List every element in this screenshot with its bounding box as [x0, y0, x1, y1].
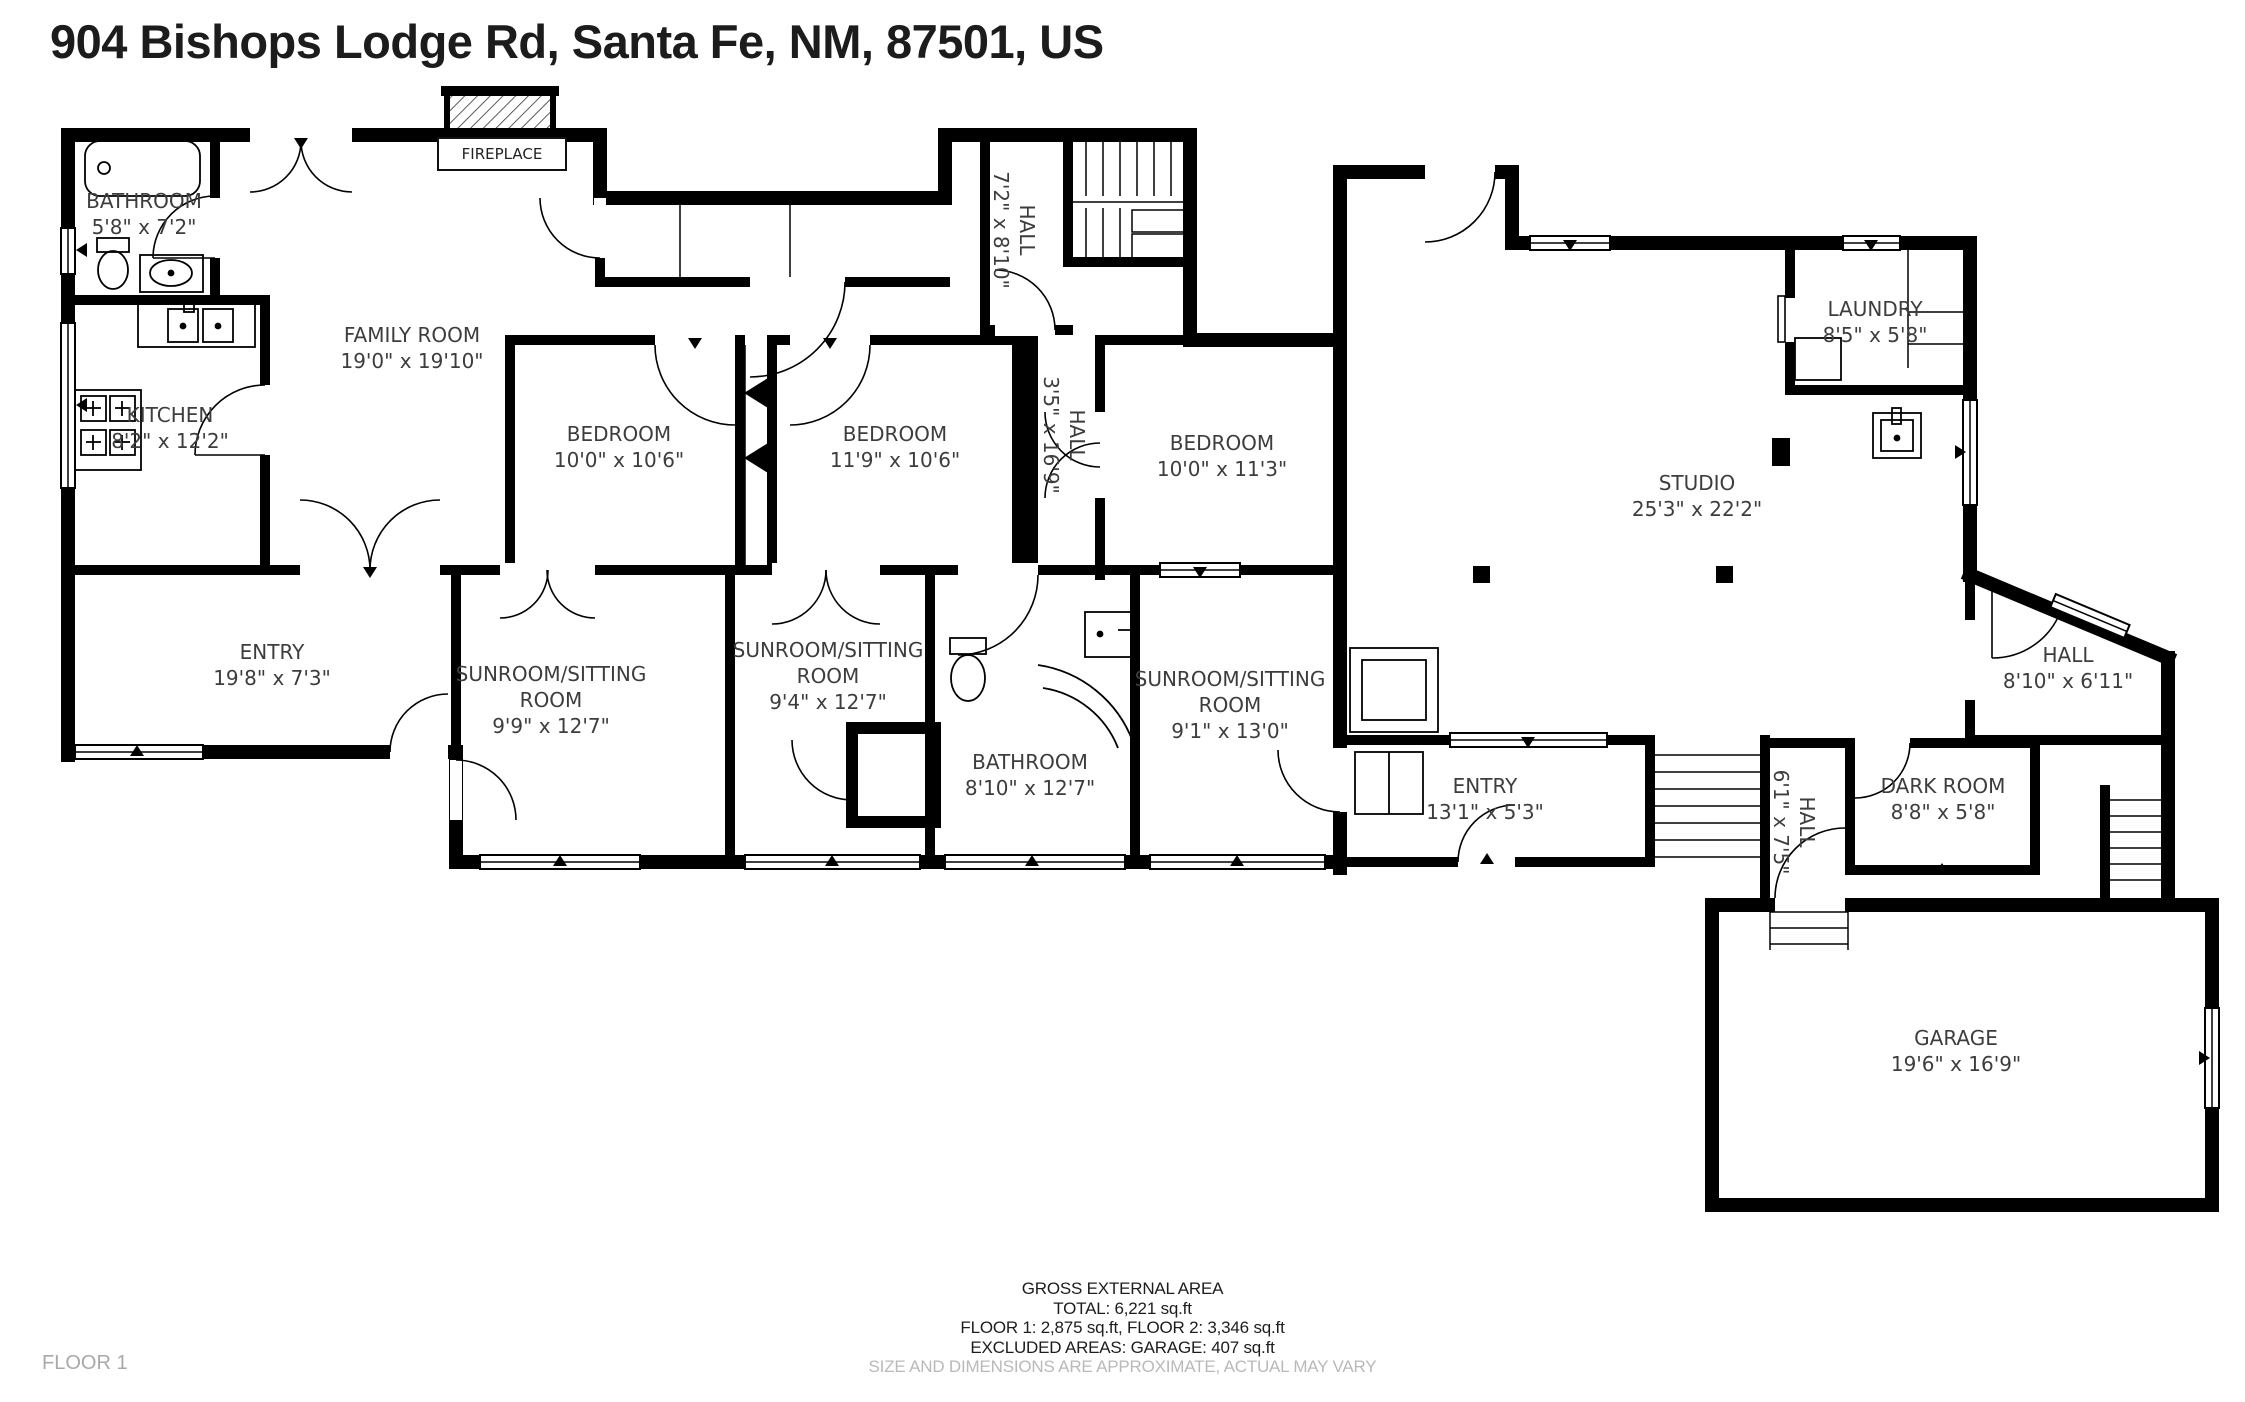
stairs-upper	[1073, 140, 1188, 258]
column	[1473, 566, 1490, 583]
room-label-bathroom-2: BATHROOM8'10" x 12'7"	[965, 749, 1095, 801]
room-label-bathroom-1: BATHROOM5'8" x 7'2"	[86, 188, 202, 240]
room-label-bedroom-2: BEDROOM11'9" x 10'6"	[830, 421, 960, 473]
room-label-kitchen: KITCHEN8'2" x 12'2"	[111, 402, 229, 454]
column	[1716, 566, 1733, 583]
floor-number-label: FLOOR 1	[42, 1352, 128, 1375]
fireplace-label: FIREPLACE	[437, 137, 567, 171]
room-label-laundry: LAUNDRY8'5" x 5'8"	[1823, 296, 1928, 348]
room-label-hall-garage: HALL6'1" x 7'5"	[1768, 770, 1820, 875]
room-label-garage: GARAGE19'6" x 16'9"	[1891, 1025, 2021, 1077]
floor-areas: FLOOR 1: 2,875 sq.ft, FLOOR 2: 3,346 sq.…	[0, 1318, 2245, 1338]
room-label-sunroom-3: SUNROOM/SITTING ROOM9'1" x 13'0"	[1104, 666, 1356, 744]
floorplan-page: 904 Bishops Lodge Rd, Santa Fe, NM, 8750…	[0, 0, 2245, 1402]
disclaimer: SIZE AND DIMENSIONS ARE APPROXIMATE, ACT…	[0, 1357, 2245, 1377]
room-label-dark-room: DARK ROOM8'8" x 5'8"	[1881, 773, 2006, 825]
room-label-sunroom-2: SUNROOM/SITTING ROOM9'4" x 12'7"	[702, 637, 954, 715]
room-label-studio: STUDIO25'3" x 22'2"	[1632, 470, 1762, 522]
room-label-family-room: FAMILY ROOM19'0" x 19'10"	[340, 322, 483, 374]
direction-arrows	[76, 138, 2210, 1065]
room-label-hall-right: HALL8'10" x 6'11"	[2003, 642, 2133, 694]
room-label-entry-2: ENTRY13'1" x 5'3"	[1426, 773, 1544, 825]
room-label-hall-middle: HALL3'5" x 16'9"	[1038, 376, 1090, 494]
stairs	[1073, 140, 2164, 950]
stairs-right	[2108, 800, 2164, 880]
room-label-entry-1: ENTRY19'8" x 7'3"	[213, 639, 331, 691]
footer-area-summary: GROSS EXTERNAL AREA TOTAL: 6,221 sq.ft F…	[0, 1279, 2245, 1377]
stairs-to-garage	[1770, 905, 1848, 950]
room-label-bedroom-3: BEDROOM10'0" x 11'3"	[1157, 430, 1287, 482]
stairs-studio-wing	[1655, 755, 1760, 857]
room-label-hall-upper: HALL7'2" x 8'10"	[988, 171, 1040, 289]
room-label-bedroom-1: BEDROOM10'0" x 10'6"	[554, 421, 684, 473]
closet-box	[852, 728, 935, 822]
bathroom-cabinet	[1085, 612, 1135, 657]
toilet-1	[97, 238, 129, 252]
room-label-sunroom-1: SUNROOM/SITTING ROOM9'9" x 12'7"	[425, 661, 677, 739]
excluded-areas: EXCLUDED AREAS: GARAGE: 407 sq.ft	[0, 1338, 2245, 1358]
total-area: TOTAL: 6,221 sq.ft	[0, 1299, 2245, 1319]
gross-external-area-label: GROSS EXTERNAL AREA	[0, 1279, 2245, 1299]
